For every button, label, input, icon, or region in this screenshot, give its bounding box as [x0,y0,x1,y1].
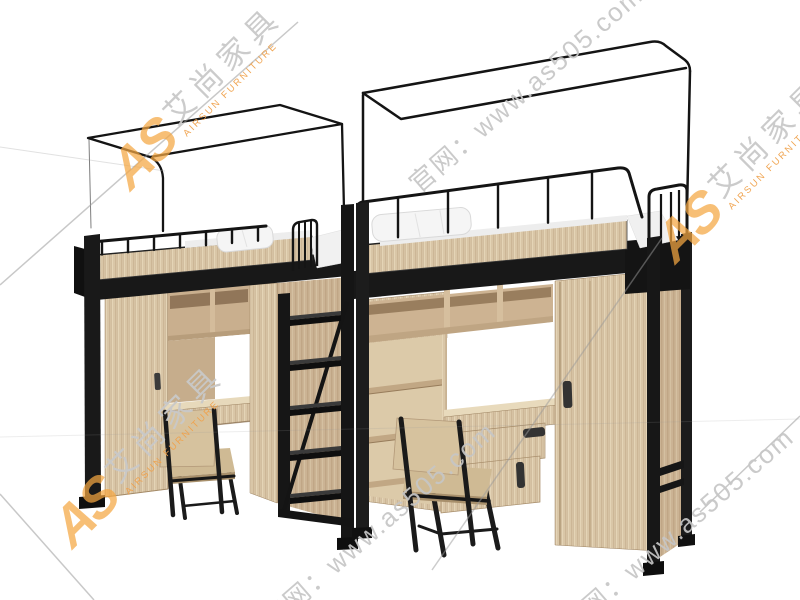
center-posts [337,202,372,550]
right-loft-bed [354,168,695,576]
left-wardrobe-door-handle [154,373,161,390]
right-wardrobe-door-handle [563,381,573,408]
left-bed-front-leg [84,234,101,501]
left-wardrobe-door [105,292,168,497]
right-cabinet-handle [516,462,525,488]
left-chair [160,409,237,518]
right-wardrobe-side-panel [660,252,684,557]
right-canopy-frame [363,42,690,213]
screenshot-root: 官网：www.as505.com 官网：www.as505.com 官网：www… [0,0,800,600]
right-bed-front-leg [647,236,660,568]
product-photo-illustration [0,0,800,600]
left-canopy-frame [88,105,344,231]
right-wardrobe-door [555,274,658,551]
